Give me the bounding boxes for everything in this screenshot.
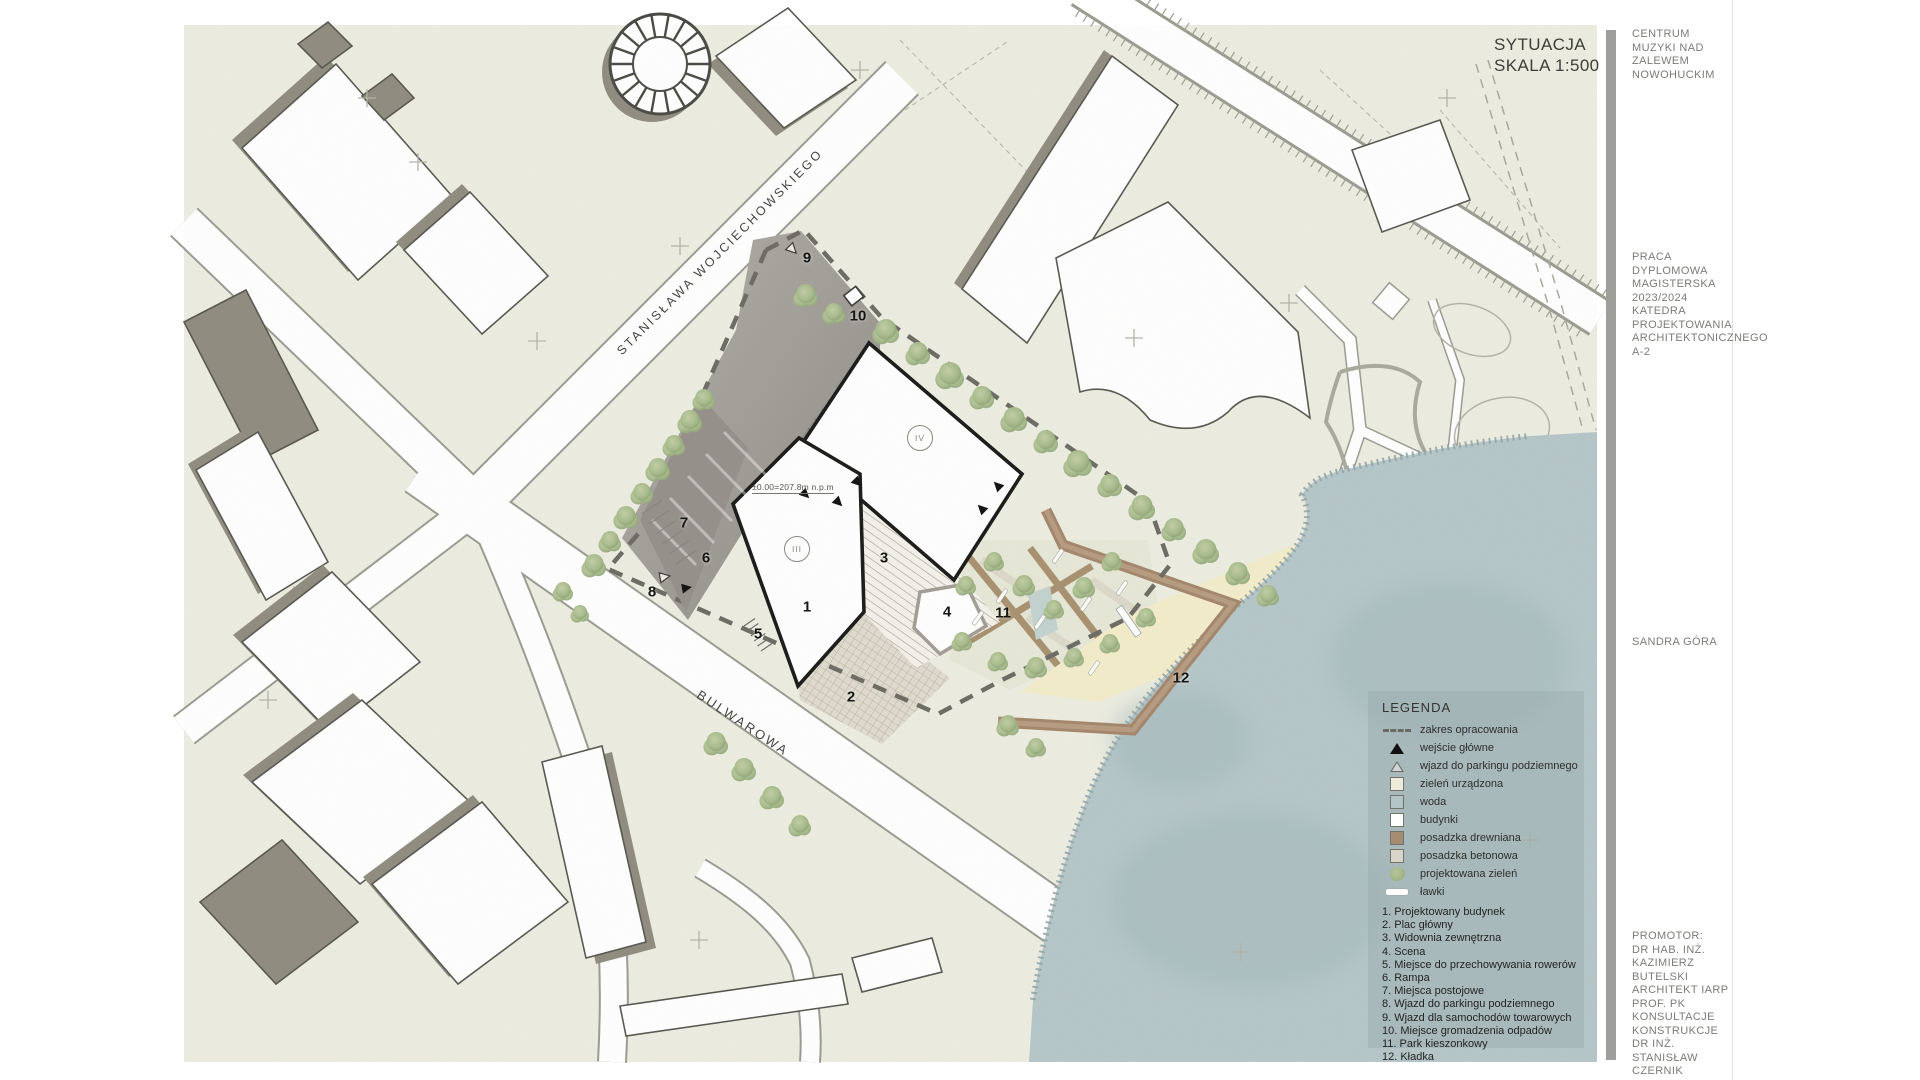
map-number-11: 11 — [995, 605, 1011, 622]
legend-list-item: 5. Miejsce do przechowywania rowerów — [1382, 959, 1584, 972]
legend-row: wjazd do parkingu podziemnego — [1382, 757, 1584, 775]
sidebar-text-line: DR INŻ. — [1632, 1038, 1740, 1052]
map-number-3: 3 — [880, 550, 888, 567]
sidebar-text-line: PROMOTOR: — [1632, 930, 1740, 944]
color-swatch-icon — [1390, 777, 1404, 791]
sidebar-text-line: STANISŁAW — [1632, 1052, 1740, 1066]
legend-label: budynki — [1420, 814, 1458, 826]
map-number-12: 12 — [1173, 670, 1190, 687]
sidebar-project-title: CENTRUMMUZYKI NADZALEWEMNOWOHUCKIM — [1632, 28, 1740, 82]
building-mark-III: III — [784, 536, 810, 562]
sidebar-text-line: NOWOHUCKIM — [1632, 69, 1740, 83]
sidebar-text-line: KONSTRUKCJE — [1632, 1025, 1740, 1039]
map-number-1: 1 — [803, 599, 811, 616]
sidebar-text-line: KONSULTACJE — [1632, 1011, 1740, 1025]
map-number-6: 6 — [702, 550, 710, 567]
tree-icon — [1390, 867, 1405, 881]
sidebar-text-line: 2023/2024 — [1632, 292, 1740, 306]
legend-list-item: 1. Projektowany budynek — [1382, 906, 1584, 919]
legend-row: wejście główne — [1382, 739, 1584, 757]
main-entrance-icon — [1390, 743, 1404, 754]
legend-list-item: 9. Wjazd dla samochodów towarowych — [1382, 1012, 1584, 1025]
legend-numbered-list: 1. Projektowany budynek2. Plac główny3. … — [1382, 906, 1584, 1064]
legend-symbol-rows: zakres opracowaniawejście głównewjazd do… — [1382, 721, 1584, 901]
legend-list-item: 4. Scena — [1382, 946, 1584, 959]
sidebar-text-line: CENTRUM — [1632, 28, 1740, 42]
sidebar-text-line: DR HAB. INŻ. — [1632, 944, 1740, 958]
legend-panel: LEGENDA zakres opracowaniawejście główne… — [1368, 691, 1584, 1048]
legend-list-item: 3. Widownia zewnętrzna — [1382, 932, 1584, 945]
legend-list-item: 2. Plac główny — [1382, 919, 1584, 932]
map-number-2: 2 — [847, 689, 855, 706]
legend-label: projektowana zieleń — [1420, 868, 1517, 880]
boundary-dash-icon — [1383, 729, 1411, 732]
map-number-8: 8 — [648, 584, 656, 601]
legend-label: woda — [1420, 796, 1446, 808]
legend-row: projektowana zieleń — [1382, 865, 1584, 883]
title-line-1: SYTUACJA — [1494, 34, 1600, 55]
legend-label: ławki — [1420, 886, 1444, 898]
sidebar-text-line: DYPLOMOWA — [1632, 265, 1740, 279]
sidebar-thesis-info: PRACADYPLOMOWAMAGISTERSKA2023/2024KATEDR… — [1632, 251, 1740, 359]
legend-list-item: 10. Miejsce gromadzenia odpadów — [1382, 1025, 1584, 1038]
legend-label: wejście główne — [1420, 742, 1494, 754]
sidebar-text-line: KAZIMIERZ — [1632, 957, 1740, 971]
sidebar-divider-strip — [1606, 30, 1616, 1060]
sidebar-text-line: ZALEWEM — [1632, 55, 1740, 69]
sidebar-text-line: A-2 — [1632, 346, 1740, 360]
sidebar-text-line: MAGISTERSKA — [1632, 278, 1740, 292]
parking-entry-icon — [1390, 761, 1404, 772]
legend-list-item: 6. Rampa — [1382, 972, 1584, 985]
sidebar-text-line: ARCHITEKTONICZNEGO — [1632, 332, 1740, 346]
sidebar-promoter-info: PROMOTOR:DR HAB. INŻ.KAZIMIERZBUTELSKIAR… — [1632, 930, 1740, 1079]
legend-title: LEGENDA — [1382, 700, 1584, 715]
legend-label: posadzka betonowa — [1420, 850, 1518, 862]
legend-row: budynki — [1382, 811, 1584, 829]
color-swatch-icon — [1390, 849, 1404, 863]
sidebar-text-line: PROF. PK — [1632, 998, 1740, 1012]
drawing-title: SYTUACJA SKALA 1:500 — [1494, 34, 1600, 76]
color-swatch-icon — [1390, 795, 1404, 809]
sidebar-author: SANDRA GÓRA — [1632, 636, 1740, 650]
legend-label: posadzka drewniana — [1420, 832, 1521, 844]
legend-label: zieleń urządzona — [1420, 778, 1503, 790]
legend-row: zakres opracowania — [1382, 721, 1584, 739]
map-number-9: 9 — [803, 250, 811, 267]
level-annotation: ±0.00=207.8m n.p.m — [752, 482, 834, 494]
map-number-10: 10 — [850, 308, 867, 325]
sidebar-text-line: CZERNIK — [1632, 1065, 1740, 1079]
color-swatch-icon — [1390, 831, 1404, 845]
sidebar-text-line: BUTELSKI — [1632, 971, 1740, 985]
legend-row: zieleń urządzona — [1382, 775, 1584, 793]
legend-label: wjazd do parkingu podziemnego — [1420, 760, 1578, 772]
page-edge-line — [1732, 0, 1733, 1080]
sidebar-text-line: ARCHITEKT IARP — [1632, 984, 1740, 998]
legend-list-item: 11. Park kieszonkowy — [1382, 1038, 1584, 1051]
title-line-2: SKALA 1:500 — [1494, 55, 1600, 76]
legend-row: woda — [1382, 793, 1584, 811]
map-number-7: 7 — [680, 515, 688, 532]
map-number-5: 5 — [754, 626, 762, 643]
sidebar-text-line: MUZYKI NAD — [1632, 42, 1740, 56]
legend-label: zakres opracowania — [1420, 724, 1518, 736]
sidebar-text-line: PRACA — [1632, 251, 1740, 265]
bench-icon — [1386, 889, 1408, 895]
building-mark-IV: IV — [907, 425, 933, 451]
legend-list-item: 12. Kładka — [1382, 1051, 1584, 1064]
color-swatch-icon — [1390, 813, 1404, 827]
site-plan-sheet: SYTUACJA SKALA 1:500 STANISŁAWA WOJCIECH… — [0, 0, 1920, 1080]
map-number-4: 4 — [943, 604, 951, 621]
legend-list-item: 7. Miejsca postojowe — [1382, 985, 1584, 998]
site-plan-map — [0, 0, 1920, 1080]
legend-row: ławki — [1382, 883, 1584, 901]
sidebar-text-line: KATEDRA — [1632, 305, 1740, 319]
sidebar-text-line: PROJEKTOWANIA — [1632, 319, 1740, 333]
legend-row: posadzka drewniana — [1382, 829, 1584, 847]
legend-list-item: 8. Wjazd do parkingu podziemnego — [1382, 998, 1584, 1011]
legend-row: posadzka betonowa — [1382, 847, 1584, 865]
